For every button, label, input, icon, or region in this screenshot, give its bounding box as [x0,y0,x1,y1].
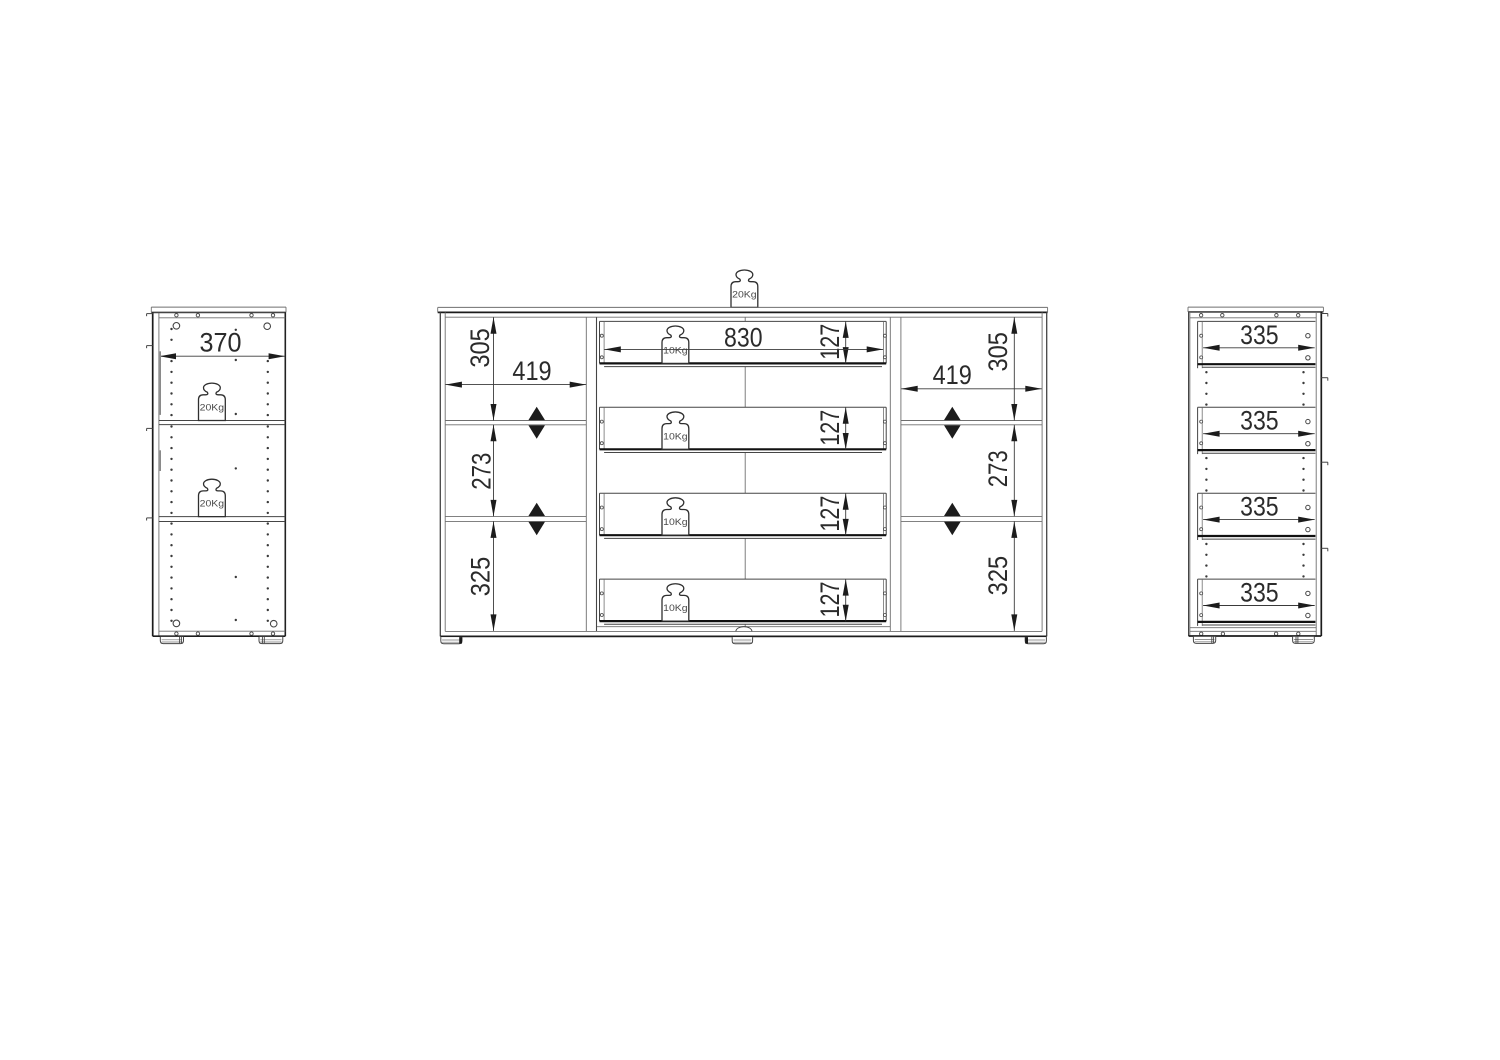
svg-text:419: 419 [512,356,551,386]
svg-text:127: 127 [815,496,845,532]
svg-text:10Kg: 10Kg [663,603,688,614]
svg-text:335: 335 [1240,320,1279,350]
svg-text:127: 127 [815,582,845,618]
svg-text:273: 273 [466,453,496,490]
svg-text:20Kg: 20Kg [200,403,225,414]
svg-text:10Kg: 10Kg [663,431,688,442]
svg-text:830: 830 [724,323,763,353]
svg-text:10Kg: 10Kg [663,345,688,356]
svg-text:335: 335 [1240,406,1279,436]
svg-text:419: 419 [933,360,972,390]
svg-text:127: 127 [815,410,845,446]
svg-text:20Kg: 20Kg [732,289,757,300]
svg-text:325: 325 [983,556,1013,596]
svg-text:370: 370 [200,328,242,358]
svg-text:325: 325 [466,557,496,597]
svg-text:10Kg: 10Kg [663,517,688,528]
svg-text:305: 305 [465,328,495,368]
svg-text:305: 305 [983,332,1013,372]
svg-text:273: 273 [983,450,1013,487]
svg-text:127: 127 [815,324,845,360]
svg-text:335: 335 [1240,492,1279,522]
svg-text:20Kg: 20Kg [200,499,225,510]
svg-text:335: 335 [1240,578,1279,608]
